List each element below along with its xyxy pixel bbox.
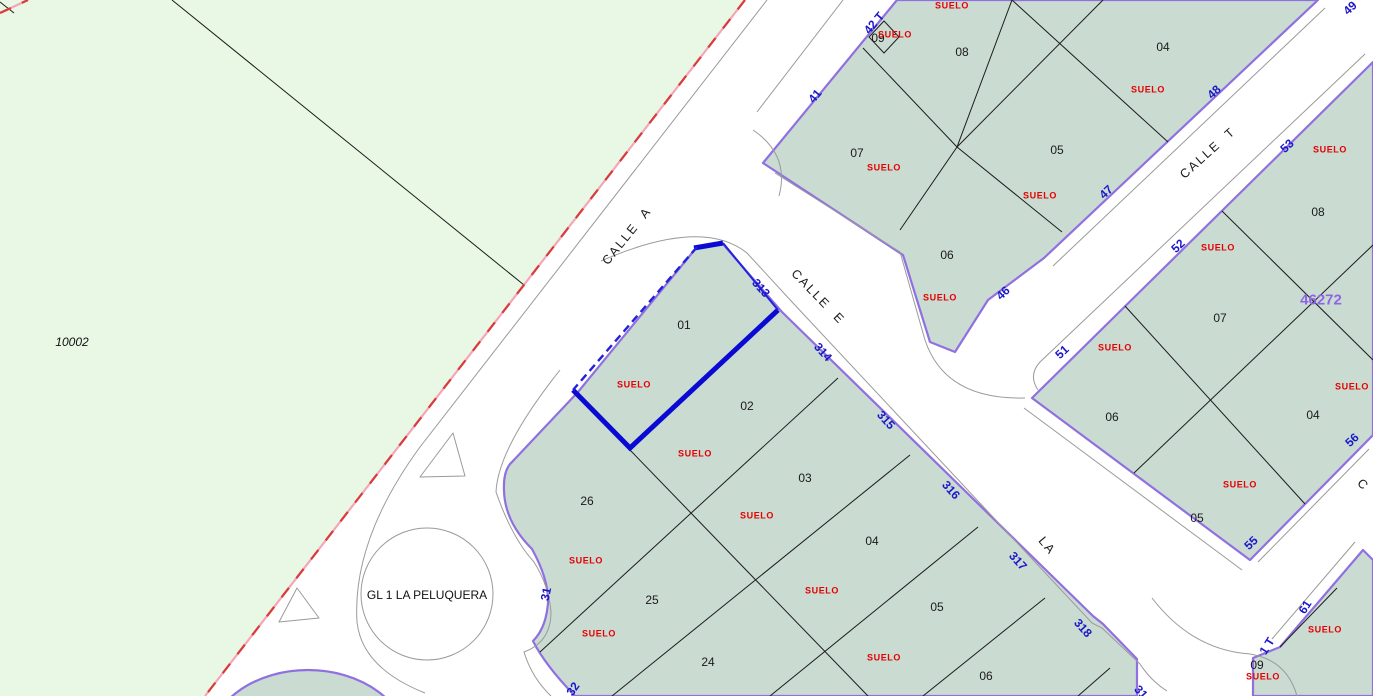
traffic-island-1 xyxy=(420,433,465,477)
map-canvas[interactable] xyxy=(0,0,1373,696)
roundabout-circle xyxy=(361,528,493,660)
southwest-parcel-ellipse[interactable] xyxy=(208,670,408,696)
cadastral-map-viewport[interactable]: 0102030405062625240708090605040807060405… xyxy=(0,0,1373,696)
southeast-block[interactable] xyxy=(1253,550,1373,696)
central-block[interactable] xyxy=(504,243,1137,696)
